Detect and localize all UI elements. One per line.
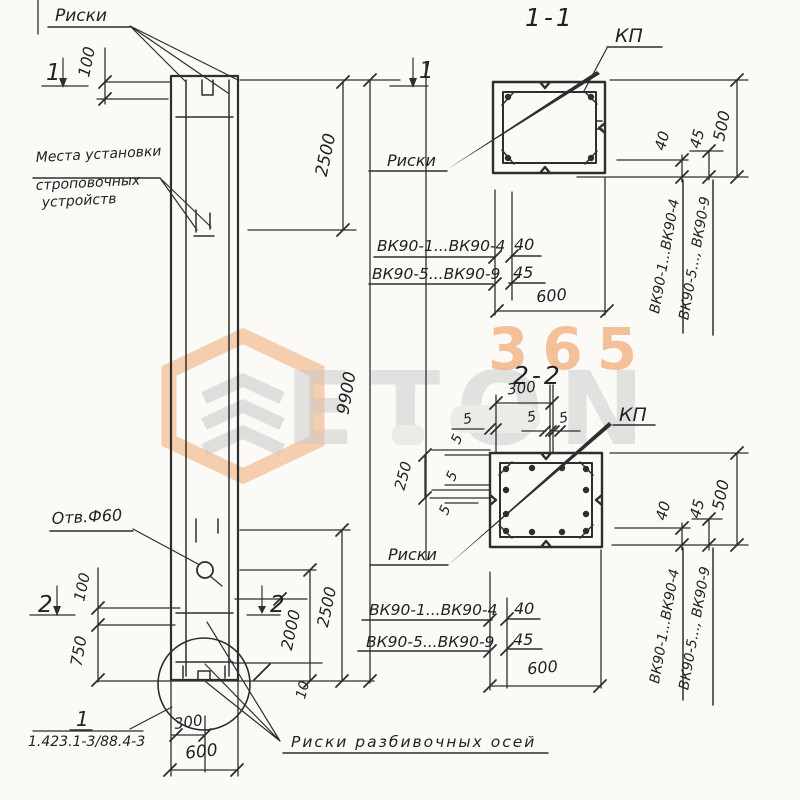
column-inner-details (176, 80, 233, 680)
dim-750: 750 (67, 634, 91, 667)
section1-dim-500: 500 (709, 109, 734, 143)
rebar-dot (529, 529, 535, 535)
section2-stirrup (500, 463, 592, 537)
hole-label: Отв.Ф60 (51, 505, 122, 528)
section2-side-label-b: ВК90-5..., ВК90-9 (676, 565, 713, 691)
table1-width-600: 600 (535, 285, 567, 307)
dim-2500-top: 2500 (312, 132, 341, 178)
section2-marker-right: 2 (270, 592, 285, 618)
dim-100-top: 100 (74, 45, 99, 79)
rebar-dot (505, 155, 511, 161)
rebar-dot (505, 94, 511, 100)
rebar-dot (588, 94, 594, 100)
rebar-dot (503, 466, 509, 472)
table1-row2-cover: 45 (513, 263, 533, 282)
section2-marker-left: 2 (38, 592, 53, 618)
section1-kp-label: КП (615, 25, 643, 47)
section2-dim-5-left: 5 (443, 469, 461, 484)
rebar-dot (583, 466, 589, 472)
section2-cover-40: 40 (652, 499, 674, 522)
column-outline (171, 76, 238, 680)
table2-row1-range: ВК90-1...ВК90-4 (369, 601, 497, 619)
section-arrow (258, 606, 266, 614)
section2-dim-5-left: 5 (436, 503, 454, 518)
drawing-svg: ETON 365 (0, 0, 800, 800)
detail-balloon-circle (158, 638, 250, 730)
strop-label-line3: устройств (40, 191, 117, 211)
table2-row2-range: ВК90-5...ВК90-9 (366, 633, 494, 651)
detail-ref-number: 1 (76, 707, 89, 731)
table1-row1-cover: 40 (514, 235, 534, 254)
watermark-logo-bars (204, 380, 282, 450)
section2-dim-500: 500 (708, 478, 733, 512)
section2-kp-label: КП (619, 404, 647, 426)
riski-axes-label: Риски разбивочных осей (291, 733, 536, 751)
dim-10: 10 (293, 679, 313, 700)
section1-marker-left: 1 (46, 60, 61, 86)
section1-cover-45: 45 (686, 127, 708, 150)
section1-marker-right: 1 (419, 58, 434, 84)
section2-cover-45: 45 (686, 497, 708, 520)
rebar-dot (559, 529, 565, 535)
riski-top-label: Риски (55, 6, 107, 26)
section1-side-label-a: ВК90-1...ВК90-4 (647, 198, 683, 315)
dim-600-base: 600 (184, 740, 218, 763)
section2-dim-300: 300 (506, 378, 536, 399)
section1-riski-label: Риски (387, 151, 436, 170)
table2-row1-cover: 40 (514, 599, 534, 618)
rebar-dot (503, 487, 509, 493)
rebar-dot (503, 511, 509, 517)
dim-2500-bottom: 2500 (313, 585, 340, 629)
table2-width-600: 600 (526, 657, 558, 679)
dim-100-bottom: 100 (70, 571, 94, 603)
detail-series-ref: 1.423.1-3/88.4-3 (28, 734, 145, 750)
riski-taper-leader (446, 71, 600, 170)
section2-side-label-a: ВК90-1...ВК90-4 (647, 568, 683, 685)
rebar-dot (559, 465, 565, 471)
section1-cover-40: 40 (651, 129, 673, 152)
rebar-dot (583, 511, 589, 517)
table1-row1-range: ВК90-1...ВК90-4 (377, 237, 505, 255)
table2-row2-cover: 45 (513, 630, 533, 649)
rebar-dot (588, 155, 594, 161)
section1-title: 1-1 (525, 3, 575, 32)
section2-riski-label: Риски (388, 545, 437, 564)
blueprint-canvas: ETON 365 (0, 0, 800, 800)
rebar-dot (583, 528, 589, 534)
rebar-dot (503, 528, 509, 534)
scan-smudge (392, 425, 424, 445)
hole-circle (197, 562, 213, 578)
rebar-dot (529, 465, 535, 471)
section2-stirrup-hooks (499, 462, 593, 538)
section1-side-label-b: ВК90-5..., ВК90-9 (676, 195, 713, 321)
table1-row2-range: ВК90-5...ВК90-9 (372, 265, 500, 283)
strop-label-line1: Места установки (35, 143, 161, 166)
rebar-dot (583, 487, 589, 493)
strop-label-line2: строповочных (35, 173, 141, 194)
